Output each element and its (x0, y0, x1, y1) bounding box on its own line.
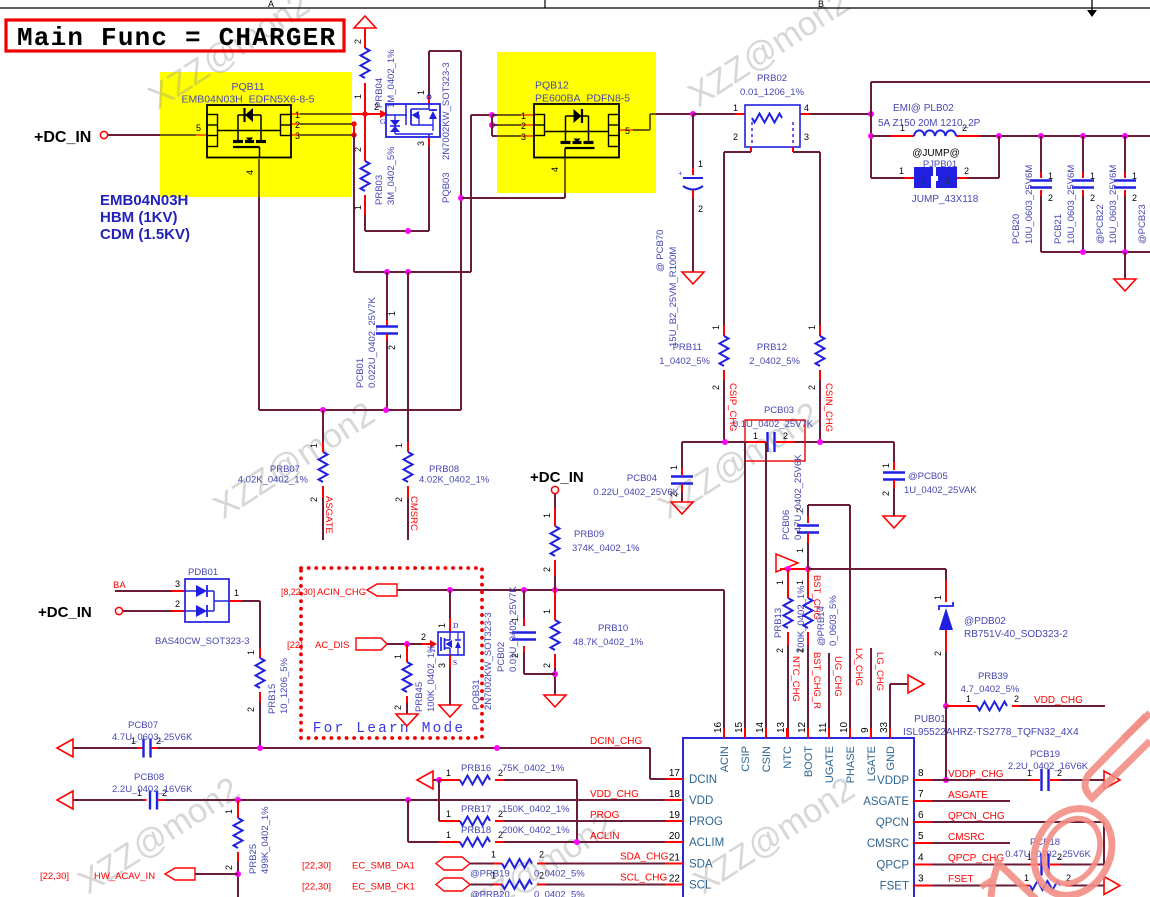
svg-text:1: 1 (733, 103, 738, 113)
svg-text:PRB15: PRB15 (267, 684, 278, 714)
svg-text:+DC_IN: +DC_IN (34, 129, 91, 146)
svg-text:1: 1 (491, 871, 496, 881)
svg-text:2: 2 (1048, 193, 1053, 203)
svg-text:2: 2 (542, 567, 552, 572)
svg-text:2: 2 (795, 648, 805, 653)
svg-text:2: 2 (881, 491, 891, 496)
svg-text:1: 1 (446, 768, 451, 778)
svg-text:VDD: VDD (689, 795, 713, 807)
svg-text:2.2U_0402_16V6K: 2.2U_0402_16V6K (112, 784, 193, 795)
svg-text:16: 16 (713, 721, 724, 733)
svg-text:4: 4 (550, 167, 560, 172)
svg-text:PE600BA_PDFN8-5: PE600BA_PDFN8-5 (535, 93, 630, 105)
svg-text:18: 18 (669, 789, 681, 800)
svg-text:[22,30]: [22,30] (40, 871, 69, 882)
svg-text:2: 2 (711, 385, 721, 390)
svg-text:4: 4 (804, 103, 809, 113)
svg-text:2: 2 (1090, 193, 1095, 203)
svg-text:2: 2 (374, 102, 379, 112)
svg-text:1: 1 (921, 176, 926, 185)
svg-text:PDB01: PDB01 (188, 567, 218, 578)
svg-text:2: 2 (1132, 193, 1137, 203)
svg-text:@PRB19: @PRB19 (470, 869, 510, 880)
svg-text:2.2U_0402_16V6K: 2.2U_0402_16V6K (1008, 761, 1089, 772)
svg-text:+DC_IN: +DC_IN (530, 469, 584, 486)
svg-text:@PCB05: @PCB05 (908, 471, 948, 482)
svg-text:2: 2 (393, 705, 403, 710)
svg-text:48.7K_0402_1%: 48.7K_0402_1% (573, 637, 644, 648)
svg-text:1: 1 (387, 311, 397, 316)
svg-text:1: 1 (1048, 171, 1053, 181)
svg-text:VDDP: VDDP (877, 775, 909, 787)
svg-text:BOOT: BOOT (803, 746, 815, 777)
svg-text:0.022U_0402_25V7K: 0.022U_0402_25V7K (367, 296, 378, 388)
svg-text:3: 3 (804, 132, 809, 142)
svg-text:0.47U_0402_25V6K: 0.47U_0402_25V6K (793, 454, 804, 540)
svg-text:1: 1 (224, 809, 234, 814)
svg-text:PJPB01: PJPB01 (923, 159, 957, 170)
svg-text:BA: BA (113, 580, 126, 591)
svg-text:1: 1 (393, 654, 403, 659)
svg-text:0.47U_0402_25V6K: 0.47U_0402_25V6K (1005, 849, 1091, 860)
svg-text:21: 21 (669, 853, 681, 864)
svg-text:1: 1 (416, 90, 426, 95)
svg-text:5: 5 (625, 126, 630, 136)
svg-text:14: 14 (755, 721, 766, 733)
svg-text:1: 1 (899, 166, 904, 176)
svg-text:EC_SMB_CK1: EC_SMB_CK1 (352, 882, 415, 893)
svg-text:0.22U_0402_25V6K: 0.22U_0402_25V6K (593, 487, 679, 498)
svg-text:11: 11 (818, 722, 829, 733)
svg-text:FSET: FSET (880, 881, 909, 893)
svg-text:B: B (818, 0, 824, 9)
svg-text:1: 1 (353, 205, 363, 210)
svg-text:1: 1 (753, 431, 758, 441)
svg-text:1: 1 (309, 443, 319, 448)
svg-text:0.01_1206_1%: 0.01_1206_1% (740, 87, 804, 98)
svg-text:10U_0603_25V6M: 10U_0603_25V6M (1066, 165, 1077, 244)
svg-text:1: 1 (542, 609, 552, 614)
svg-text:1: 1 (234, 588, 239, 598)
svg-text:@PRB20: @PRB20 (470, 890, 510, 897)
svg-text:LX_CHG: LX_CHG (853, 648, 864, 686)
svg-text:2: 2 (224, 865, 234, 870)
svg-text:200K_0402_1%: 200K_0402_1% (502, 825, 570, 836)
svg-text:ISL95522AHRZ-TS2778_TQFN32_4X4: ISL95522AHRZ-TS2778_TQFN32_4X4 (903, 727, 1079, 738)
svg-text:2: 2 (733, 132, 738, 142)
svg-text:@JUMP@: @JUMP@ (912, 148, 960, 159)
svg-text:4.7U_0603_25V6K: 4.7U_0603_25V6K (112, 732, 193, 743)
svg-text:2: 2 (309, 497, 319, 502)
svg-text:ACLIM: ACLIM (689, 837, 724, 849)
svg-text:1_0402_5%: 1_0402_5% (659, 356, 710, 367)
svg-text:QPCP: QPCP (876, 860, 909, 872)
svg-text:PCB06: PCB06 (781, 510, 792, 540)
svg-text:[22,30]: [22,30] (302, 861, 331, 872)
svg-text:Main Func = CHARGER: Main Func = CHARGER (17, 23, 336, 53)
svg-text:0_0603_5%: 0_0603_5% (828, 595, 839, 646)
svg-text:PRB07: PRB07 (270, 464, 300, 475)
svg-text:4.02K_0402_1%: 4.02K_0402_1% (419, 475, 490, 486)
svg-text:VDDP_CHG: VDDP_CHG (948, 769, 1004, 780)
svg-text:1: 1 (353, 94, 363, 99)
svg-text:3: 3 (521, 132, 526, 142)
svg-text:1: 1 (775, 580, 785, 585)
svg-text:5A Z150 20M 1210_2P: 5A Z150 20M 1210_2P (878, 118, 981, 129)
svg-text:PRB17: PRB17 (461, 804, 491, 815)
svg-text:QPCN: QPCN (876, 817, 909, 829)
svg-text:D: D (453, 621, 459, 630)
svg-text:SCL_CHG: SCL_CHG (620, 873, 667, 884)
svg-text:PQB11: PQB11 (231, 81, 264, 93)
svg-text:1: 1 (446, 830, 451, 840)
svg-text:0.1U_0402_25V7K: 0.1U_0402_25V7K (733, 419, 814, 430)
svg-text:1: 1 (1090, 171, 1095, 181)
svg-text:PUB01: PUB01 (914, 714, 946, 725)
svg-text:PRB11: PRB11 (673, 342, 702, 353)
svg-text:13: 13 (776, 721, 787, 733)
svg-text:PCB19: PCB19 (1030, 749, 1060, 760)
svg-text:1: 1 (698, 159, 703, 169)
svg-text:2: 2 (521, 121, 526, 131)
svg-text:1: 1 (881, 463, 891, 468)
svg-text:A: A (268, 0, 274, 9)
svg-text:1: 1 (521, 111, 526, 121)
svg-text:CMSRC: CMSRC (408, 496, 419, 531)
svg-text:10U_0603_25V6M: 10U_0603_25V6M (1024, 165, 1035, 244)
svg-text:DCIN_CHG: DCIN_CHG (590, 736, 642, 747)
svg-text:10U_0603_25V6M: 10U_0603_25V6M (1108, 165, 1119, 244)
svg-text:For Learn Mode: For Learn Mode (313, 721, 466, 737)
svg-text:19: 19 (669, 810, 681, 821)
svg-text:UG_CHG: UG_CHG (832, 656, 843, 697)
svg-text:1: 1 (1132, 171, 1137, 181)
svg-text:EMB04N03H_EDFN5X6-8-5: EMB04N03H_EDFN5X6-8-5 (181, 94, 314, 106)
svg-text:GND: GND (885, 746, 897, 771)
svg-text:ACIN: ACIN (719, 746, 731, 772)
svg-text:BST_CHG_R: BST_CHG_R (811, 652, 822, 709)
svg-text:17: 17 (669, 768, 681, 779)
svg-text:[22,30]: [22,30] (302, 882, 331, 893)
svg-text:SDA_CHG: SDA_CHG (620, 852, 669, 863)
svg-text:PRB16: PRB16 (461, 763, 491, 774)
svg-text:CMSRC: CMSRC (948, 832, 985, 843)
svg-text:2: 2 (353, 147, 363, 152)
svg-text:1: 1 (795, 580, 805, 585)
svg-text:5: 5 (196, 123, 201, 133)
svg-text:100K_0402_1%: 100K_0402_1% (796, 585, 807, 653)
svg-text:NTC: NTC (782, 746, 794, 769)
svg-text:BAS40CW_SOT323-3: BAS40CW_SOT323-3 (155, 636, 250, 647)
svg-text:1: 1 (491, 850, 496, 860)
svg-text:EMB04N03H: EMB04N03H (100, 192, 188, 209)
svg-text:2: 2 (539, 871, 544, 881)
svg-text:1M_0402_1%: 1M_0402_1% (386, 49, 397, 108)
svg-text:2: 2 (394, 497, 404, 502)
svg-text:3: 3 (437, 663, 447, 668)
svg-text:@ PCB70: @ PCB70 (655, 230, 666, 272)
svg-text:3: 3 (416, 141, 426, 146)
svg-text:[22]: [22] (287, 640, 303, 651)
svg-text:HBM (1KV): HBM (1KV) (100, 209, 178, 226)
svg-text:@PCB23: @PCB23 (1137, 204, 1148, 244)
svg-text:4.02K_0402_1%: 4.02K_0402_1% (238, 475, 309, 486)
svg-text:UGATE: UGATE (824, 746, 836, 783)
svg-text:2: 2 (964, 166, 969, 176)
svg-text:EMI@ PLB02: EMI@ PLB02 (893, 103, 954, 114)
svg-text:8: 8 (918, 768, 924, 779)
svg-text:AC_DIS: AC_DIS (315, 640, 349, 651)
svg-text:2: 2 (421, 632, 426, 642)
svg-text:499K_0402_1%: 499K_0402_1% (260, 806, 271, 874)
svg-text:9: 9 (860, 727, 871, 733)
svg-text:PROG: PROG (590, 810, 620, 821)
svg-text:PRB25: PRB25 (248, 844, 259, 874)
svg-text:2: 2 (945, 177, 950, 186)
svg-text:RB751V-40_SOD323-2: RB751V-40_SOD323-2 (964, 629, 1068, 640)
svg-text:+: + (678, 169, 683, 178)
svg-text:ACIN_CHG: ACIN_CHG (317, 587, 366, 598)
svg-text:1: 1 (807, 325, 817, 330)
svg-text:2: 2 (933, 651, 943, 656)
svg-text:100K_0402_1%: 100K_0402_1% (426, 644, 437, 712)
svg-text:PCB01: PCB01 (355, 358, 366, 388)
svg-text:LG_CHG: LG_CHG (874, 652, 885, 691)
svg-text:@PRB14: @PRB14 (816, 606, 827, 646)
svg-text:3: 3 (295, 131, 300, 141)
svg-text:NTC_CHG: NTC_CHG (790, 656, 801, 702)
svg-text:VDD_CHG: VDD_CHG (590, 789, 639, 800)
svg-text:1: 1 (966, 694, 971, 704)
svg-text:2: 2 (807, 385, 817, 390)
svg-text:ACLIN: ACLIN (590, 831, 619, 842)
svg-text:PROG: PROG (689, 816, 723, 828)
svg-text:HW_ACAV_IN: HW_ACAV_IN (94, 871, 155, 882)
svg-text:@PCB22: @PCB22 (1095, 204, 1106, 244)
svg-text:150K_0402_1%: 150K_0402_1% (502, 804, 570, 815)
svg-text:1: 1 (295, 110, 300, 120)
svg-text:PRB18: PRB18 (461, 825, 491, 836)
svg-text:FSET: FSET (948, 874, 974, 885)
svg-text:PQB03: PQB03 (441, 172, 452, 203)
svg-text:3M_0402_5%: 3M_0402_5% (386, 146, 397, 205)
svg-text:2: 2 (783, 431, 788, 441)
svg-text:15: 15 (734, 721, 745, 733)
svg-text:PCB04: PCB04 (627, 473, 657, 484)
svg-text:2: 2 (775, 648, 785, 653)
svg-text:SCL: SCL (689, 880, 712, 892)
svg-text:2: 2 (542, 663, 552, 668)
svg-text:SDA: SDA (689, 859, 713, 871)
svg-text:ASGATE: ASGATE (948, 790, 988, 801)
svg-text:1: 1 (711, 325, 721, 330)
svg-text:PCB20: PCB20 (1011, 214, 1022, 244)
svg-text:2: 2 (246, 707, 256, 712)
svg-text:4.7_0402_5%: 4.7_0402_5% (961, 684, 1020, 695)
svg-text:1: 1 (669, 465, 679, 470)
svg-text:4: 4 (245, 170, 255, 175)
svg-text:S: S (453, 658, 457, 667)
svg-text:1: 1 (446, 809, 451, 819)
svg-text:2: 2 (698, 204, 703, 214)
svg-text:10: 10 (839, 721, 850, 733)
svg-text:2N7002KW_SOT323-3: 2N7002KW_SOT323-3 (441, 62, 452, 160)
svg-text:5: 5 (918, 831, 924, 842)
svg-text:G: G (380, 117, 386, 126)
svg-text:75K_0402_1%: 75K_0402_1% (502, 763, 565, 774)
svg-text:[8,22,30]: [8,22,30] (281, 587, 315, 597)
svg-text:VDD_CHG: VDD_CHG (1034, 695, 1083, 706)
svg-text:DCIN: DCIN (689, 774, 717, 786)
svg-text:2: 2 (353, 39, 363, 44)
svg-text:33: 33 (879, 721, 890, 733)
svg-text:PCB03: PCB03 (764, 405, 794, 416)
svg-text:PRB03: PRB03 (374, 175, 385, 205)
svg-text:PQB12: PQB12 (535, 80, 569, 92)
svg-text:CSIN_CHG: CSIN_CHG (823, 383, 834, 432)
svg-text:ASGATE: ASGATE (863, 796, 909, 808)
svg-text:2: 2 (1014, 694, 1019, 704)
svg-text:2_0402_5%: 2_0402_5% (749, 356, 800, 367)
svg-text:CSIN: CSIN (761, 746, 773, 772)
svg-text:PQB31: PQB31 (471, 679, 482, 710)
svg-text:2: 2 (175, 599, 180, 609)
svg-text:PRB12: PRB12 (757, 342, 787, 353)
svg-text:PRB08: PRB08 (429, 464, 459, 475)
svg-text:1: 1 (795, 548, 805, 553)
svg-text:@PDB02: @PDB02 (964, 616, 1006, 627)
svg-text:1: 1 (394, 443, 404, 448)
svg-text:CMSRC: CMSRC (867, 838, 909, 850)
svg-text:2: 2 (387, 345, 397, 350)
svg-text:1: 1 (1024, 873, 1029, 883)
svg-text:374K_0402_1%: 374K_0402_1% (572, 543, 640, 554)
svg-text:PRB02: PRB02 (757, 73, 787, 84)
svg-text:22: 22 (669, 874, 681, 885)
svg-text:PHASE: PHASE (845, 746, 857, 783)
svg-text:2: 2 (295, 120, 300, 130)
svg-text:PRB09: PRB09 (574, 529, 604, 540)
svg-text:+DC_IN: +DC_IN (38, 604, 92, 621)
svg-text:PCB08: PCB08 (134, 772, 164, 783)
svg-text:20: 20 (669, 831, 681, 842)
svg-text:PCB07: PCB07 (128, 720, 158, 731)
svg-text:15U_B2_25VM_R100M: 15U_B2_25VM_R100M (668, 247, 679, 347)
svg-text:CSIP: CSIP (740, 746, 752, 772)
svg-text:PRB45: PRB45 (414, 682, 425, 712)
svg-text:PCB21: PCB21 (1053, 214, 1064, 244)
svg-text:EC_SMB_DA1: EC_SMB_DA1 (352, 861, 415, 872)
svg-text:6: 6 (918, 810, 924, 821)
svg-text:JUMP_43X118: JUMP_43X118 (912, 194, 979, 205)
svg-text:2N7002KW_SOT323-3: 2N7002KW_SOT323-3 (483, 612, 494, 710)
svg-text:7: 7 (918, 789, 924, 800)
svg-text:PRB39: PRB39 (978, 671, 1008, 682)
svg-text:1: 1 (437, 623, 447, 628)
svg-text:1: 1 (542, 513, 552, 518)
svg-text:3: 3 (175, 579, 180, 589)
svg-text:1U_0402_25VAK: 1U_0402_25VAK (904, 485, 977, 496)
svg-text:3: 3 (918, 874, 924, 885)
svg-text:1: 1 (246, 650, 256, 655)
svg-text:0_0402_5%: 0_0402_5% (534, 890, 585, 897)
svg-text:4: 4 (918, 853, 924, 864)
svg-text:PRB10: PRB10 (598, 623, 628, 634)
svg-text:QPCN_CHG: QPCN_CHG (948, 811, 1005, 822)
svg-text:ASGATE: ASGATE (323, 496, 334, 534)
svg-text:CDM (1.5KV): CDM (1.5KV) (100, 226, 190, 243)
svg-text:10_1206_5%: 10_1206_5% (279, 657, 290, 714)
svg-text:1: 1 (933, 595, 943, 600)
svg-text:12: 12 (797, 721, 808, 733)
svg-text:2: 2 (539, 850, 544, 860)
svg-text:PCB02: PCB02 (496, 642, 507, 672)
svg-text:0.01U_0402_25V7K: 0.01U_0402_25V7K (508, 586, 519, 672)
svg-text:PRB13: PRB13 (773, 608, 784, 638)
